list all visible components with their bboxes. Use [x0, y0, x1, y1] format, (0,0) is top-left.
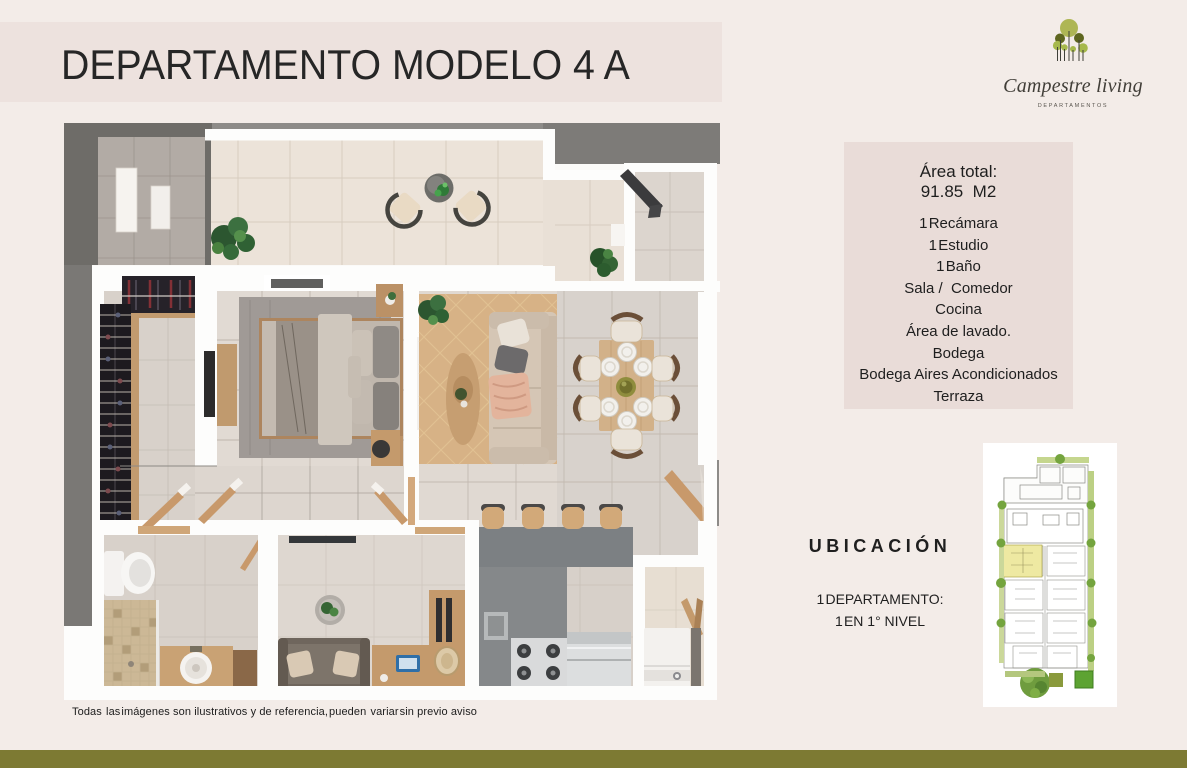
- svg-text:DEPARTAMENTOS: DEPARTAMENTOS: [1038, 103, 1109, 109]
- svg-text:Campestre living: Campestre living: [1003, 75, 1143, 97]
